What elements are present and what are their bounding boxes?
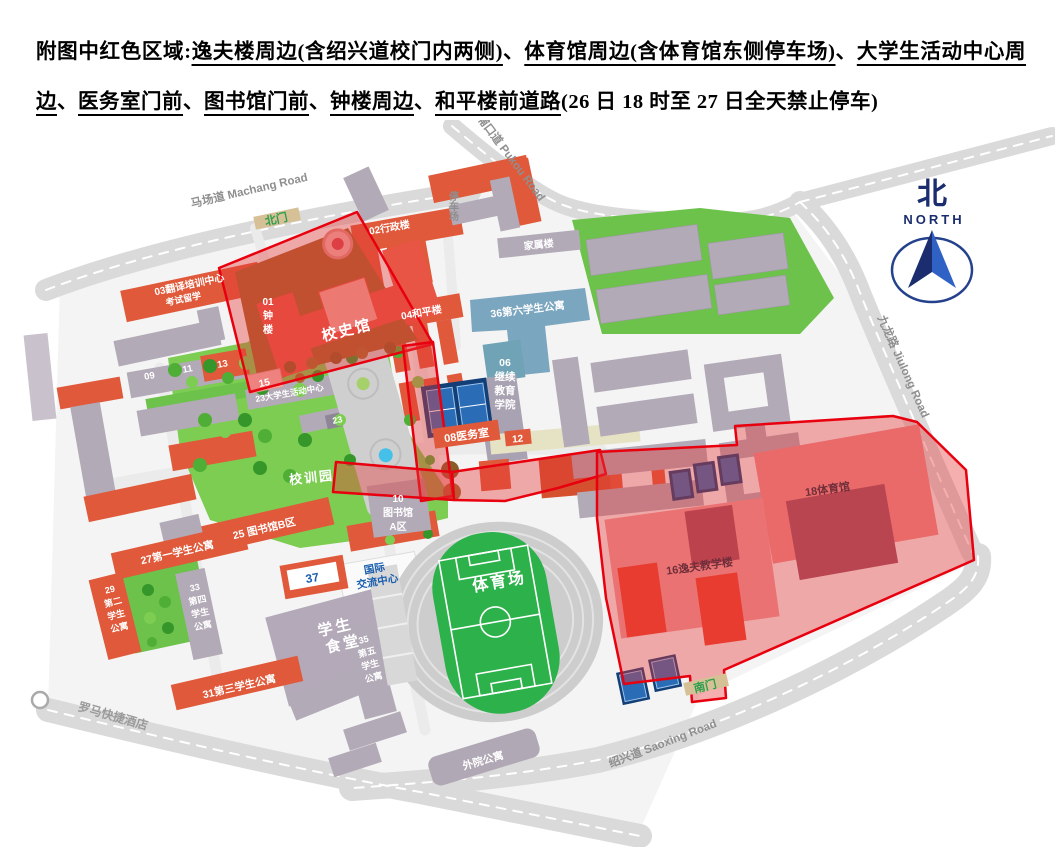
- b06-label-2: 教育: [494, 384, 516, 397]
- tree-icon: [279, 418, 291, 430]
- b10-label-2: A区: [389, 521, 406, 533]
- parking-lot-label: 停车场: [447, 190, 459, 222]
- notice-page: 附图中红色区域:逸夫楼周边(含绍兴道校门内两侧)、体育馆周边(含体育馆东侧停车场…: [0, 0, 1055, 847]
- b01-label-1: 钟: [263, 309, 273, 322]
- notice-segment-11: 钟楼周边: [330, 91, 414, 113]
- tree-icon: [258, 429, 272, 443]
- hotel-marker-icon: [32, 692, 48, 708]
- b33-label-0: 33: [189, 582, 201, 594]
- notice-segment-14: (26 日 18 时至 27 日全天禁止停车): [561, 91, 878, 113]
- tree-icon: [159, 596, 171, 608]
- b01-label-0: 01: [262, 297, 274, 308]
- campus-map: 马场道 Machang Road 浦口道 Pukou Road 九龙路 Jiul…: [0, 120, 1055, 847]
- notice-segment-12: 、: [414, 91, 435, 113]
- b23b-label: 23: [331, 414, 343, 426]
- b01-label-2: 楼: [263, 323, 273, 336]
- notice-segment-2: 、: [503, 41, 524, 63]
- b13-label: 13: [216, 358, 228, 371]
- tree-icon: [385, 535, 395, 545]
- tree-icon: [219, 426, 231, 438]
- compass: 北 NORTH: [892, 178, 972, 302]
- compass-cn-label: 北: [917, 178, 947, 211]
- notice-segment-8: 、: [183, 91, 204, 113]
- tree-icon: [193, 458, 207, 472]
- b10-label-1: 图书馆: [383, 506, 413, 519]
- tree-icon: [168, 363, 182, 377]
- notice-segment-13: 和平楼前道路: [435, 91, 561, 113]
- tree-icon: [203, 359, 217, 373]
- notice-segment-10: 、: [309, 91, 330, 113]
- notice-segment-1: 逸夫楼周边(含绍兴道校门内两侧): [192, 41, 503, 63]
- tree-icon: [162, 622, 174, 634]
- tree-icon: [238, 413, 252, 427]
- tree-icon: [224, 466, 236, 478]
- notice-segment-7: 医务室门前: [78, 91, 183, 113]
- campus-map-svg: 马场道 Machang Road 浦口道 Pukou Road 九龙路 Jiul…: [0, 120, 1055, 847]
- tree-icon: [222, 372, 234, 384]
- tree-icon: [147, 637, 157, 647]
- b06-label-0: 06: [499, 357, 511, 369]
- b37-label: 37: [305, 570, 321, 586]
- red-zone-gym-yifu: [597, 416, 974, 702]
- notice-segment-0: 附图中红色区域:: [36, 41, 192, 63]
- b06-label-1: 继续: [495, 370, 516, 383]
- b10-label-0: 10: [392, 494, 404, 505]
- tree-icon: [298, 433, 312, 447]
- b12-label: 12: [512, 433, 525, 445]
- tree-icon: [253, 461, 267, 475]
- notice-text: 附图中红色区域:逸夫楼周边(含绍兴道校门内两侧)、体育馆周边(含体育馆东侧停车场…: [36, 27, 1026, 127]
- notice-segment-3: 体育馆周边(含体育馆东侧停车场): [524, 41, 835, 63]
- notice-segment-4: 、: [835, 41, 856, 63]
- notice-segment-6: 、: [57, 91, 78, 113]
- tree-icon: [186, 376, 198, 388]
- tree-icon: [142, 584, 154, 596]
- compass-en-label: NORTH: [903, 212, 964, 227]
- tree-icon: [198, 413, 212, 427]
- b06-label-3: 学院: [495, 398, 516, 411]
- tree-icon: [144, 612, 156, 624]
- b09-label: 09: [143, 370, 155, 383]
- machang-road-label: 马场道 Machang Road: [189, 170, 309, 211]
- notice-segment-9: 图书馆门前: [204, 91, 309, 113]
